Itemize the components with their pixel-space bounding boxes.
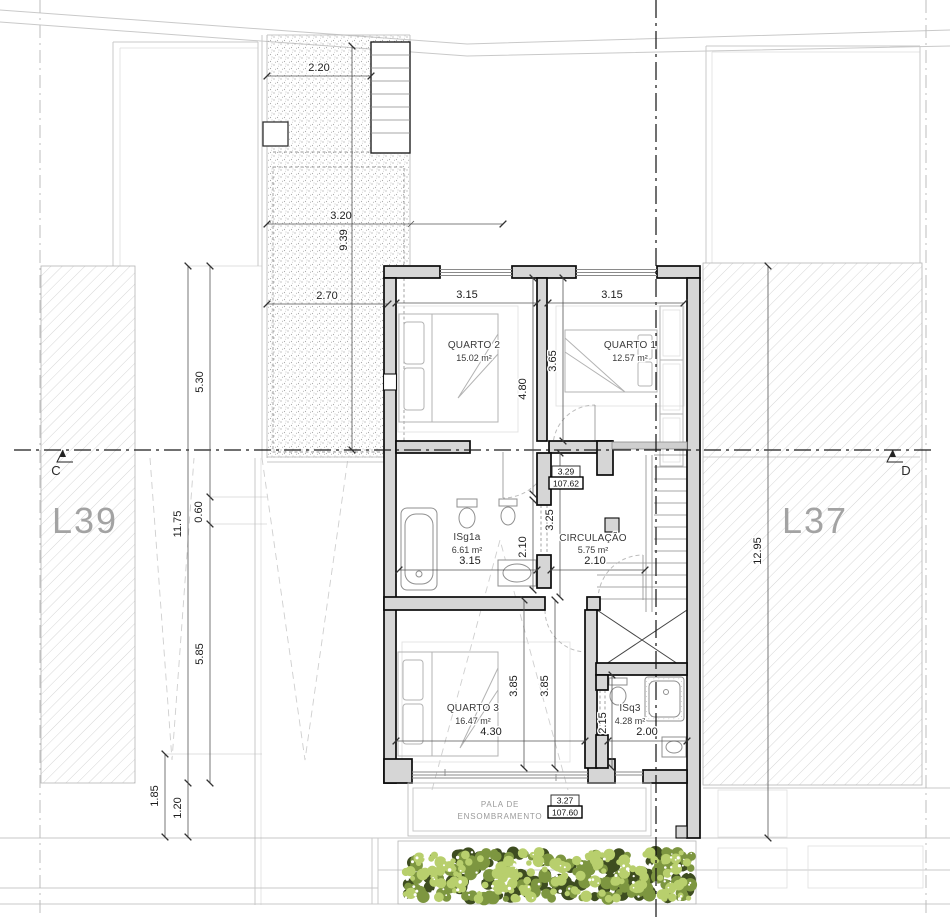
bed-quarto2: [399, 314, 498, 422]
lot-label-right: L37: [782, 500, 848, 541]
section-letter-c: C: [51, 463, 60, 478]
level-elevation: 107.62: [553, 479, 579, 489]
canopy-label-line1: PALA DE: [481, 800, 519, 809]
dim-circ-w: 2.10: [551, 555, 645, 570]
dim-label: 9.39: [338, 229, 350, 250]
duct-block: [605, 518, 619, 532]
void-railing: [612, 442, 687, 449]
dim-label: 2.10: [517, 536, 529, 557]
dim-label: 0.60: [193, 501, 205, 522]
dim-label: 1.85: [149, 785, 161, 806]
dim-left-court: 1.85: [149, 754, 165, 837]
dim-label: 3.20: [330, 210, 351, 222]
floor-plan-canvas: 2.20 3.20 2.70 9.39 5.30 0.60 5.85 11.75…: [0, 0, 950, 917]
bidet: [499, 499, 517, 525]
dim-label: 2.00: [636, 726, 657, 738]
dim-label: 1.20: [172, 797, 184, 818]
building: [384, 266, 701, 838]
dim-label: 2.15: [597, 712, 609, 733]
dim-label: 3.85: [539, 675, 551, 696]
room-area-quarto1: 12.57 m²: [612, 353, 648, 363]
level-height: 3.29: [558, 467, 575, 477]
dim-label: 3.15: [459, 555, 480, 567]
lot-label-left: L39: [52, 500, 118, 541]
dim-left-step: 0.60: [193, 497, 210, 524]
stair-break-mark: [597, 610, 687, 670]
dim-quarto3-v2: 3.85: [539, 600, 555, 768]
room-area-circulacao: 5.75 m²: [578, 545, 609, 555]
floor-plan-svg: 2.20 3.20 2.70 9.39 5.30 0.60 5.85 11.75…: [0, 0, 950, 917]
dim-left-total: 11.75: [172, 266, 188, 783]
dim-quarto2-w: 3.15: [396, 289, 537, 303]
dim-label: 3.15: [456, 289, 477, 301]
hedge: [402, 846, 697, 905]
level-height: 3.27: [557, 796, 574, 806]
room-name-isq3: ISq3: [619, 703, 641, 714]
dim-label: 3.65: [547, 350, 559, 371]
bathtub: [401, 508, 437, 590]
dim-quarto3-v1: 3.85: [508, 600, 524, 768]
room-area-quarto2: 15.02 m²: [456, 353, 492, 363]
room-area-quarto3: 16.47 m²: [455, 716, 491, 726]
dim-left-canopy: 1.20: [172, 783, 188, 837]
level-elevation: 107.60: [552, 808, 578, 818]
room-area-isq3: 4.28 m²: [615, 716, 646, 726]
level-marker-upper: 3.29 107.62: [549, 466, 583, 489]
canopy: [408, 783, 651, 836]
dim-label: 4.80: [517, 378, 529, 399]
dim-quarto1-h: 3.65: [547, 278, 563, 441]
dim-label: 4.30: [480, 726, 501, 738]
dim-quarto2-h: 4.80: [517, 278, 533, 494]
dim-label: 3.25: [544, 509, 556, 530]
room-name-isg1a: ISg1a: [453, 532, 480, 543]
section-letter-d: D: [901, 463, 910, 478]
dim-left-lower: 5.85: [194, 524, 210, 783]
room-area-isg1a: 6.61 m²: [452, 545, 483, 555]
toilet: [457, 499, 477, 528]
canopy-label-line2: ENSOMBRAMENTO: [458, 812, 543, 821]
dim-quarto1-w: 3.15: [548, 289, 684, 303]
room-name-quarto1: QUARTO 1: [604, 340, 657, 351]
dim-label: 5.85: [194, 643, 206, 664]
dim-quarto3-w: 4.30: [396, 726, 585, 741]
dim-label: 11.75: [172, 511, 184, 538]
dim-label: 12.95: [752, 537, 764, 565]
left-wall-window: [384, 374, 397, 390]
room-name-quarto3: QUARTO 3: [447, 703, 500, 714]
sink-isg1a: [498, 560, 536, 586]
dim-label: 3.15: [601, 289, 622, 301]
shower: [645, 677, 684, 721]
room-name-circulacao: CIRCULAÇÃO: [559, 531, 627, 544]
room-name-quarto2: QUARTO 2: [448, 340, 501, 351]
stairs: [597, 455, 687, 670]
dim-label: 3.85: [508, 675, 520, 696]
dim-left-upper: 5.30: [194, 266, 210, 497]
sink-isq3: [662, 737, 686, 757]
exterior-stair: [371, 42, 410, 153]
dim-label: 2.20: [308, 62, 329, 74]
dim-label: 5.30: [194, 371, 206, 392]
level-marker-canopy: 3.27 107.60: [548, 795, 582, 818]
finish-quarto3: [402, 642, 570, 762]
terrace-box: [263, 122, 288, 146]
dim-label: 2.10: [584, 555, 605, 567]
finish-quarto2: [398, 306, 518, 432]
dim-label: 2.70: [316, 290, 337, 302]
